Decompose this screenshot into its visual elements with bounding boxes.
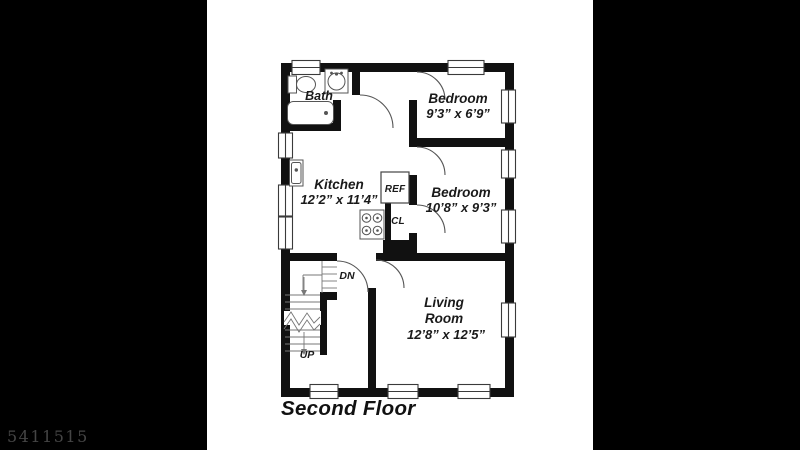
stove [360,210,384,239]
wall-stair [320,300,327,355]
bedroom1-name: Bedroom [428,92,487,106]
window-top-bath [292,61,320,75]
stair-break-band [284,311,321,325]
window-right-bedroom2-b [502,210,516,243]
wall-hall-a [281,253,337,261]
bath-label: Bath [305,90,333,103]
kitchen-dimensions: 12’2” x 11’4” [300,193,377,206]
wall-bedroom-divider [409,138,514,147]
window-top-bedroom1 [448,61,484,75]
stairs-up-label: UP [300,350,315,361]
wall-bath-right [352,63,360,95]
door-arc-living [376,260,404,288]
window-bottom-living-b [458,385,490,399]
window-left-kitchen-a [279,133,293,158]
stairs-down-label: DN [339,271,354,282]
window-left-kitchen-b [279,185,293,216]
bathtub [288,102,334,125]
wall-closet-left [385,203,391,240]
floor-title: Second Floor [281,399,416,420]
wall-stair-stub [320,292,337,300]
living-room-name-line1: Living [424,296,464,310]
living-room-name-line2: Room [425,312,463,326]
staircase [284,261,337,355]
bedroom2-name: Bedroom [431,186,490,200]
bedroom2-dimensions: 10’8” x 9’3” [426,201,497,214]
chimney-block [383,240,409,261]
door-arc-bath [360,95,393,128]
living-room-dimensions: 12’8” x 12’5” [407,328,485,341]
window-right-living [502,303,516,337]
wall-living-left [368,288,376,397]
listing-id-watermark: 5411515 [7,429,89,445]
door-arc-bedroom2 [417,147,445,175]
window-right-bedroom2-a [502,150,516,178]
kitchen-name: Kitchen [314,178,364,192]
refrigerator-label: REF [385,185,406,195]
window-right-bedroom1 [502,90,516,123]
closet-label: CL [391,217,405,227]
wall-bedroom-left-b [409,175,417,205]
wall-tub-stub [333,100,341,131]
window-left-kitchen-c [279,217,293,249]
letterboxed-photo-background: Bath Bedroom 9’3” x 6’9” Kitchen 12’2” x… [0,0,800,450]
kitchen-sink [290,160,304,186]
bedroom1-dimensions: 9’3” x 6’9” [426,107,490,120]
